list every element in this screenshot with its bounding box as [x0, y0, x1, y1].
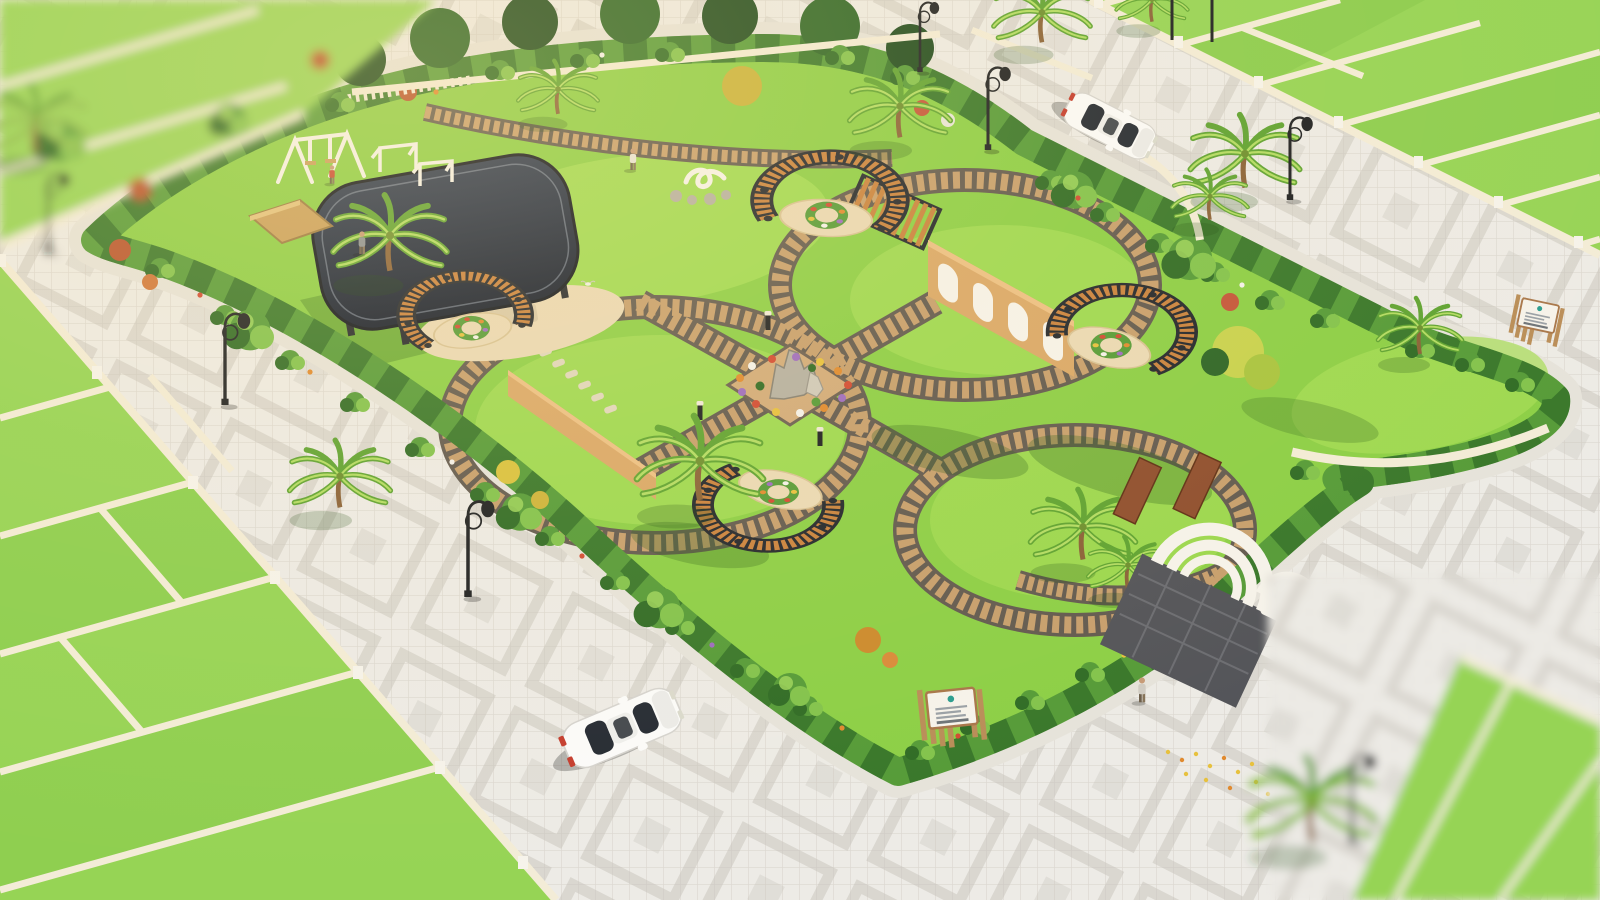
render-viewport: Aerial 3D architectural rendering of a p… — [0, 0, 1600, 900]
aerial-render: Aerial 3D architectural rendering of a p… — [0, 0, 1600, 900]
sunlight-glow-overlay — [0, 0, 1600, 900]
